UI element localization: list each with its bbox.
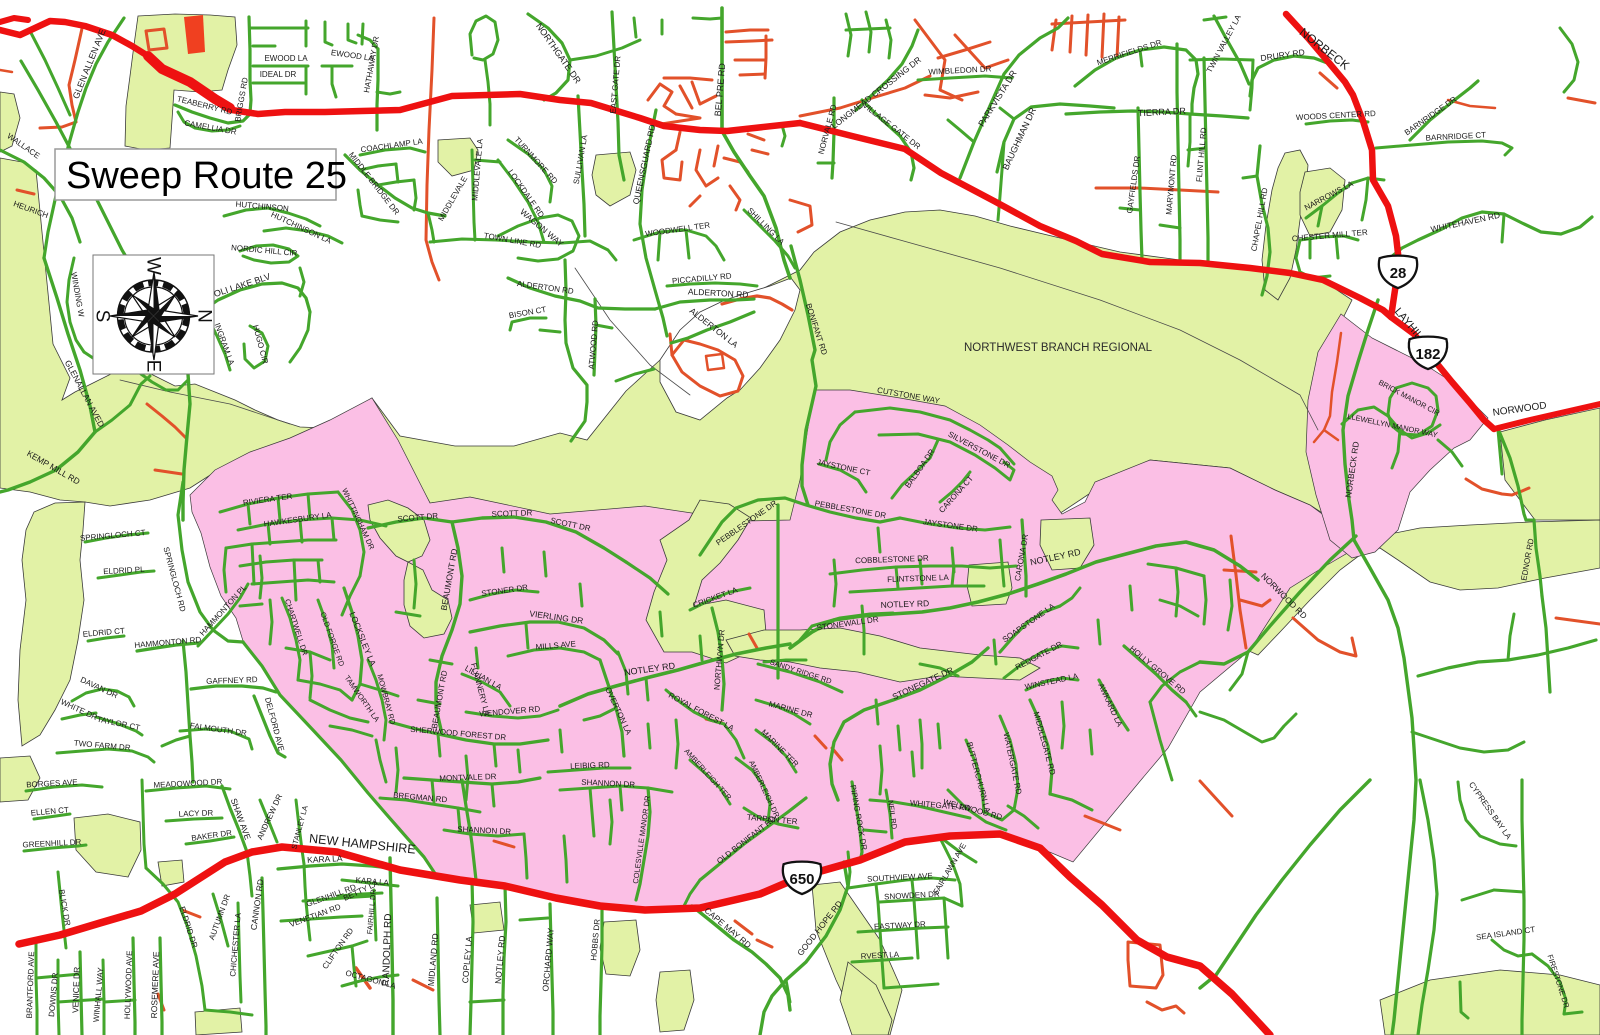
svg-text:S: S	[92, 310, 113, 323]
svg-text:IDEAL DR: IDEAL DR	[260, 70, 297, 79]
svg-text:SCOTT DR: SCOTT DR	[491, 508, 532, 518]
svg-text:650: 650	[790, 871, 815, 888]
svg-text:LACY DR: LACY DR	[179, 808, 214, 818]
svg-text:GAFFNEY RD: GAFFNEY RD	[206, 675, 258, 686]
svg-text:182: 182	[1416, 346, 1441, 363]
svg-text:W: W	[143, 257, 164, 275]
svg-text:N: N	[194, 309, 215, 323]
svg-text:KARA LA: KARA LA	[307, 853, 343, 865]
svg-text:E: E	[143, 360, 164, 373]
svg-text:VENICE DR: VENICE DR	[70, 967, 82, 1014]
svg-text:Sweep Route 25: Sweep Route 25	[66, 155, 347, 197]
svg-text:NOTLEY RD: NOTLEY RD	[880, 598, 929, 610]
svg-text:28: 28	[1390, 265, 1407, 282]
svg-text:NORTHWEST BRANCH REGIONAL: NORTHWEST BRANCH REGIONAL	[964, 342, 1153, 354]
svg-text:EWOOD LA: EWOOD LA	[264, 54, 308, 63]
svg-text:LEIBIG RD: LEIBIG RD	[570, 760, 610, 770]
